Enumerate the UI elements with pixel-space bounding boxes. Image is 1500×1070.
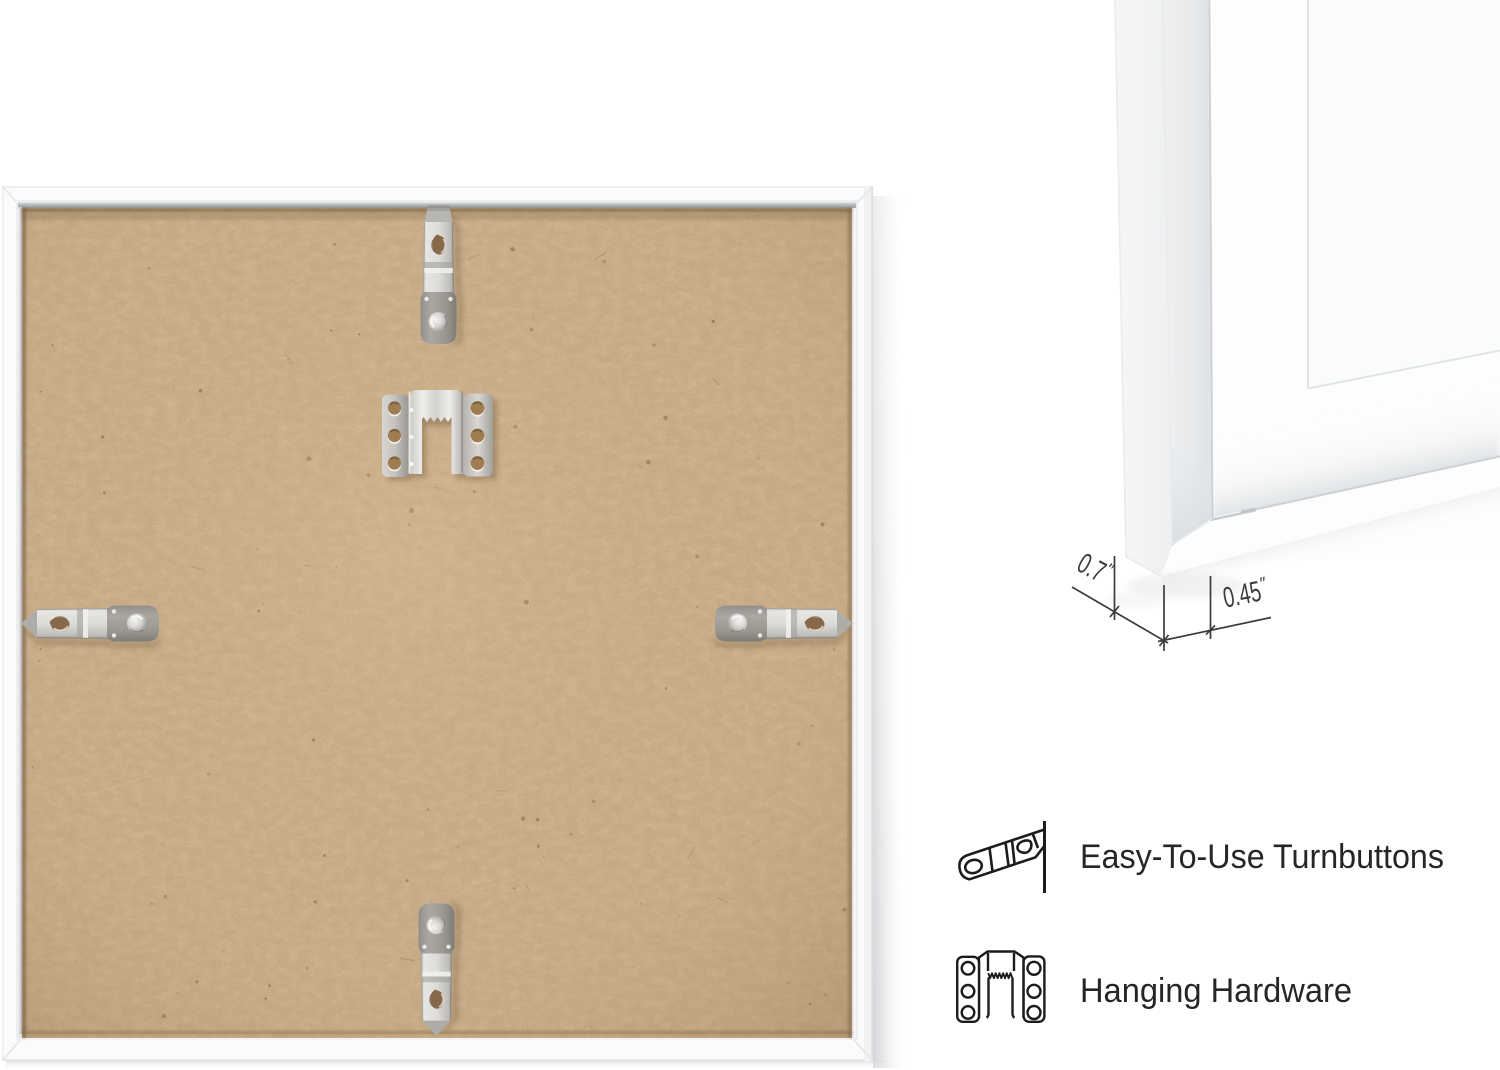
svg-text:Easy-To-Use Turnbuttons: Easy-To-Use Turnbuttons — [1080, 838, 1444, 876]
svg-text:Hanging Hardware: Hanging Hardware — [1080, 972, 1352, 1010]
